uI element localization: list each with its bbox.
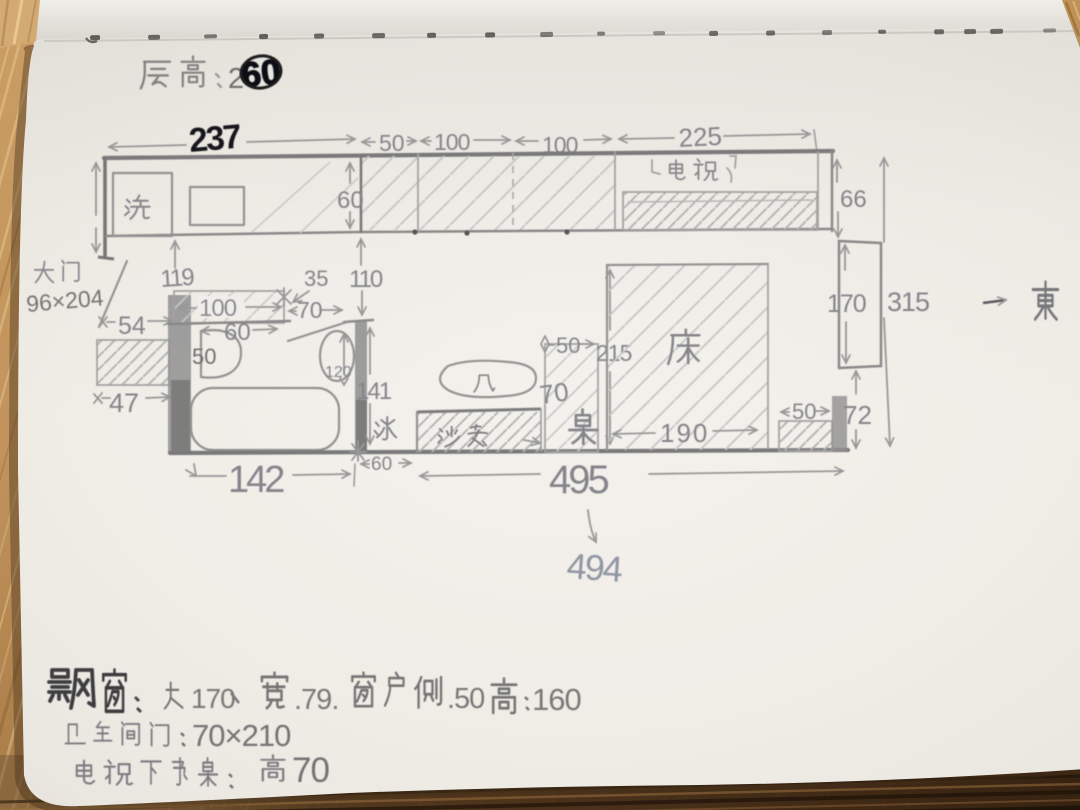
svg-text:100: 100	[199, 295, 237, 322]
svg-text:119: 119	[160, 264, 196, 293]
svg-text:60: 60	[371, 454, 392, 475]
svg-text:170: 170	[191, 683, 235, 714]
svg-text:35: 35	[304, 266, 328, 291]
svg-text:70: 70	[538, 376, 571, 410]
svg-text:495: 495	[549, 458, 608, 502]
svg-text:50: 50	[792, 399, 816, 424]
svg-text:141: 141	[356, 378, 392, 405]
svg-text:120: 120	[325, 364, 352, 381]
svg-text:142: 142	[228, 459, 284, 501]
svg-text:160: 160	[532, 682, 581, 717]
svg-text:50: 50	[192, 344, 216, 369]
svg-text:70×210: 70×210	[192, 718, 291, 753]
svg-text:50: 50	[379, 130, 405, 156]
svg-text:110: 110	[349, 266, 383, 293]
svg-text:225: 225	[678, 121, 723, 153]
svg-text:66: 66	[840, 186, 867, 213]
svg-text:60: 60	[337, 187, 364, 214]
svg-text:.50: .50	[447, 683, 484, 715]
svg-text:54: 54	[118, 312, 146, 340]
svg-text:315: 315	[887, 287, 929, 317]
svg-text:50: 50	[556, 333, 580, 358]
svg-text:70: 70	[292, 751, 329, 790]
svg-text:237: 237	[187, 118, 242, 160]
svg-text:72: 72	[843, 400, 872, 430]
svg-text:47: 47	[109, 388, 139, 418]
svg-text:.79.: .79.	[294, 684, 338, 716]
svg-text:170: 170	[827, 290, 866, 318]
svg-text:494: 494	[565, 545, 623, 590]
svg-text:60: 60	[224, 319, 251, 346]
svg-text:100: 100	[434, 129, 470, 155]
svg-text:70: 70	[297, 297, 323, 323]
svg-text:190: 190	[660, 418, 709, 448]
